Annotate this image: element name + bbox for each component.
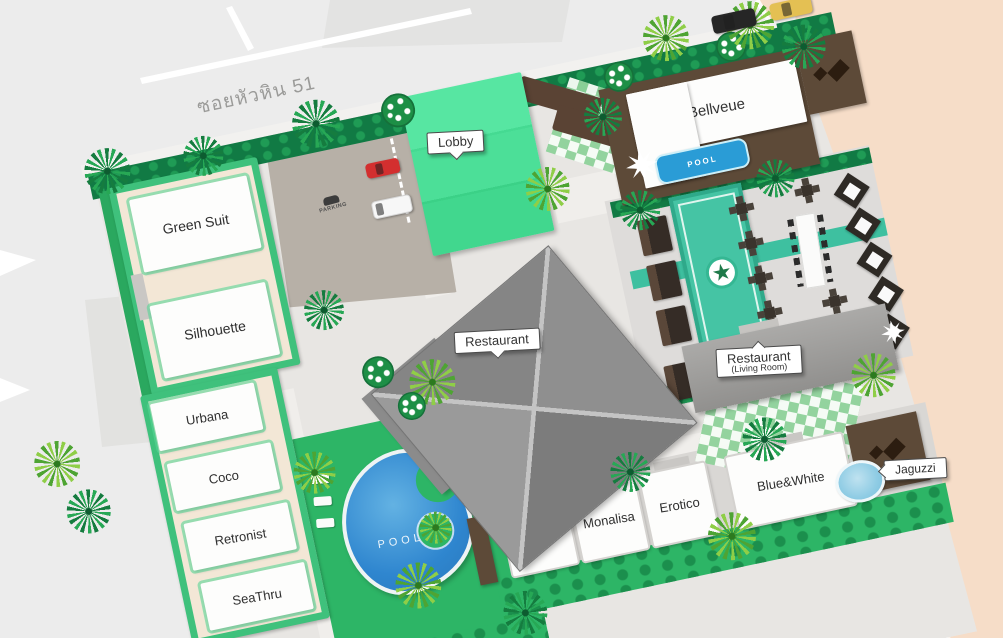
sun-lounger bbox=[316, 518, 335, 528]
living-room-callout-line2: (Living Room) bbox=[727, 362, 791, 373]
bed-icon bbox=[812, 52, 851, 92]
resort-site-map: { "map": { "street_label": "ซอยหัวหิน 51… bbox=[0, 0, 1003, 638]
car-window bbox=[374, 163, 384, 175]
room-blue-white-label: Blue&White bbox=[756, 468, 825, 493]
sun-lounger bbox=[311, 474, 330, 484]
room-seathru-label: SeaThru bbox=[231, 585, 283, 608]
dining-table bbox=[828, 295, 841, 308]
room-urbana-label: Urbana bbox=[184, 406, 228, 427]
jacuzzi-callout: Jaguzzi bbox=[883, 457, 947, 481]
room-retronist-label: Retronist bbox=[213, 525, 267, 548]
living-room-callout: Restaurant (Living Room) bbox=[715, 345, 802, 378]
room-silhouette-label: Silhouette bbox=[183, 317, 247, 343]
lobby-callout-text: Lobby bbox=[438, 133, 474, 150]
car-window bbox=[781, 2, 793, 17]
room-green-suit-label: Green Suit bbox=[161, 211, 230, 237]
dining-table bbox=[754, 272, 767, 285]
dining-table bbox=[735, 202, 748, 215]
bellveue-label: Bellveue bbox=[687, 95, 747, 122]
jacuzzi-callout-text: Jaguzzi bbox=[895, 461, 936, 477]
car-window bbox=[375, 203, 384, 216]
car-window bbox=[723, 14, 735, 30]
fountain-icon bbox=[703, 254, 741, 292]
sun-lounger bbox=[313, 496, 332, 506]
lobby-callout: Lobby bbox=[426, 130, 484, 155]
bellveue-pool-label: POOL bbox=[686, 154, 718, 169]
room-coco-label: Coco bbox=[207, 467, 239, 487]
dining-table bbox=[801, 184, 814, 197]
room-erotico-label: Erotico bbox=[658, 494, 700, 515]
restaurant-callout: Restaurant bbox=[454, 328, 541, 354]
restaurant-callout-text: Restaurant bbox=[465, 331, 529, 349]
dining-table bbox=[744, 237, 757, 250]
